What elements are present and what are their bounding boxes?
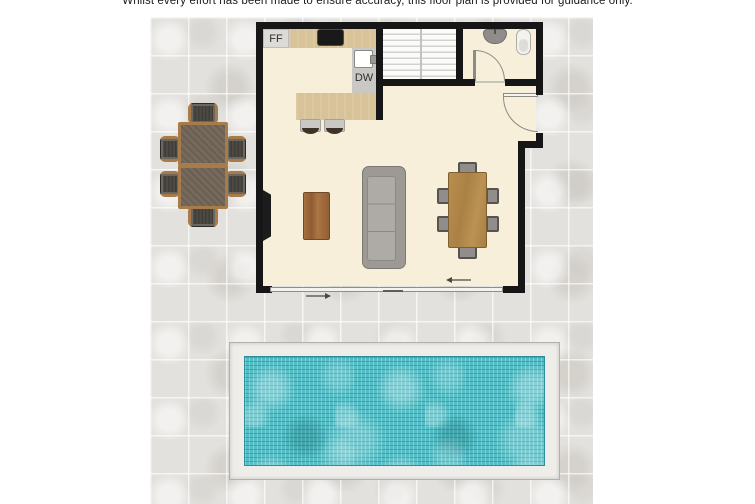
wall-bathroom-right	[505, 79, 536, 86]
sofa	[362, 166, 406, 269]
disclaimer-text: Whilst every effort has been made to ens…	[0, 0, 755, 7]
outdoor-chair	[188, 206, 218, 227]
wall-top	[256, 22, 543, 29]
bar-stool	[300, 119, 321, 132]
wall-kitchen	[376, 22, 383, 120]
wall-left	[256, 22, 263, 293]
wall-stairs-bathroom-divider	[456, 22, 463, 86]
wall-mounted-tv	[263, 190, 271, 241]
swimming-pool	[229, 342, 560, 480]
slide-direction-arrow-right-icon	[305, 292, 332, 300]
dishwasher-label: DW	[352, 72, 376, 84]
bar-stool	[324, 119, 345, 132]
fridge-freezer: FF	[263, 29, 289, 48]
wall-right-lower	[518, 148, 525, 293]
dining-table	[448, 172, 487, 248]
fridge-freezer-label: FF	[269, 33, 282, 45]
wall-jog	[518, 141, 543, 148]
wall-bottom-right-stub	[503, 286, 525, 293]
outdoor-chair	[226, 136, 246, 162]
sliding-door-overlap	[383, 290, 403, 292]
stair-rail	[420, 29, 422, 79]
outdoor-chair	[160, 136, 180, 162]
floor-plan-page: Whilst every effort has been made to ens…	[0, 0, 755, 504]
dining-chair	[486, 188, 499, 204]
wall-bathroom-left-stub	[463, 79, 475, 86]
outdoor-chair	[160, 171, 180, 197]
toilet	[516, 29, 531, 55]
coffee-table	[303, 192, 330, 240]
entrance-door-leaf	[503, 93, 538, 97]
slide-direction-arrow-left-icon	[445, 276, 472, 284]
outdoor-chair	[188, 103, 218, 124]
outdoor-chair	[226, 171, 246, 197]
wall-right-upper	[536, 22, 543, 95]
wall-below-stairs	[383, 79, 456, 86]
hob	[318, 30, 343, 45]
dining-chair	[486, 216, 499, 232]
sofa-seat-cushions	[367, 176, 396, 261]
outdoor-dining-table	[178, 122, 228, 166]
bathroom-door-threshold	[475, 81, 505, 83]
breakfast-bar	[296, 93, 376, 120]
pool-water	[244, 356, 545, 466]
outdoor-dining-table	[178, 165, 228, 209]
staircase	[383, 29, 456, 79]
